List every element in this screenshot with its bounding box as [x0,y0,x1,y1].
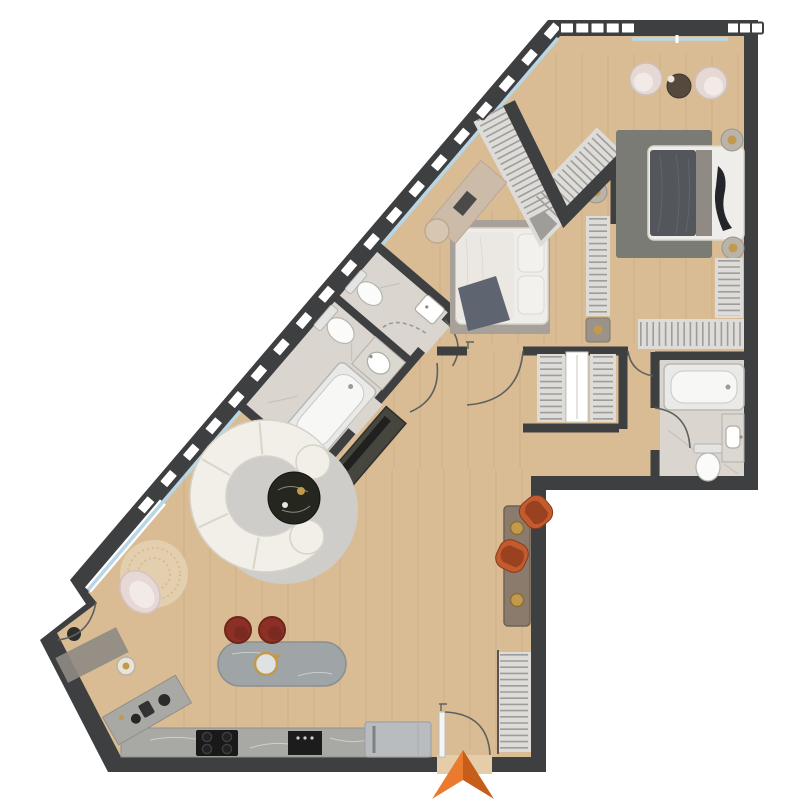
entrance-door-leaf [439,712,445,757]
double-bed [648,146,744,240]
kitchen-island [218,642,346,686]
lamp-icon [511,522,524,535]
double-bed [456,228,548,331]
master-bathtub [664,364,744,410]
master-bathroom [660,360,744,481]
oven-module [288,731,322,755]
nightstand-lamp [586,318,610,342]
pouf [425,219,449,243]
lamp-icon [511,594,524,607]
round-coffee-table [268,472,320,524]
floor-lamp [117,657,135,675]
wall-fixture [67,627,81,641]
island-sink [255,653,277,675]
round-side-table [667,74,691,98]
floor-plan [0,0,800,800]
floor-plan-page [0,0,800,800]
cooktop [196,730,238,756]
nightstand-lamp [722,237,744,259]
master-toilet [694,444,722,481]
bar-stool [225,617,251,643]
sofa-arm [290,520,324,554]
master-vanity-sink [722,414,744,462]
fridge [365,722,431,757]
faucet-icon [275,654,280,659]
nightstand-lamp [721,129,743,151]
bar-stool [259,617,285,643]
